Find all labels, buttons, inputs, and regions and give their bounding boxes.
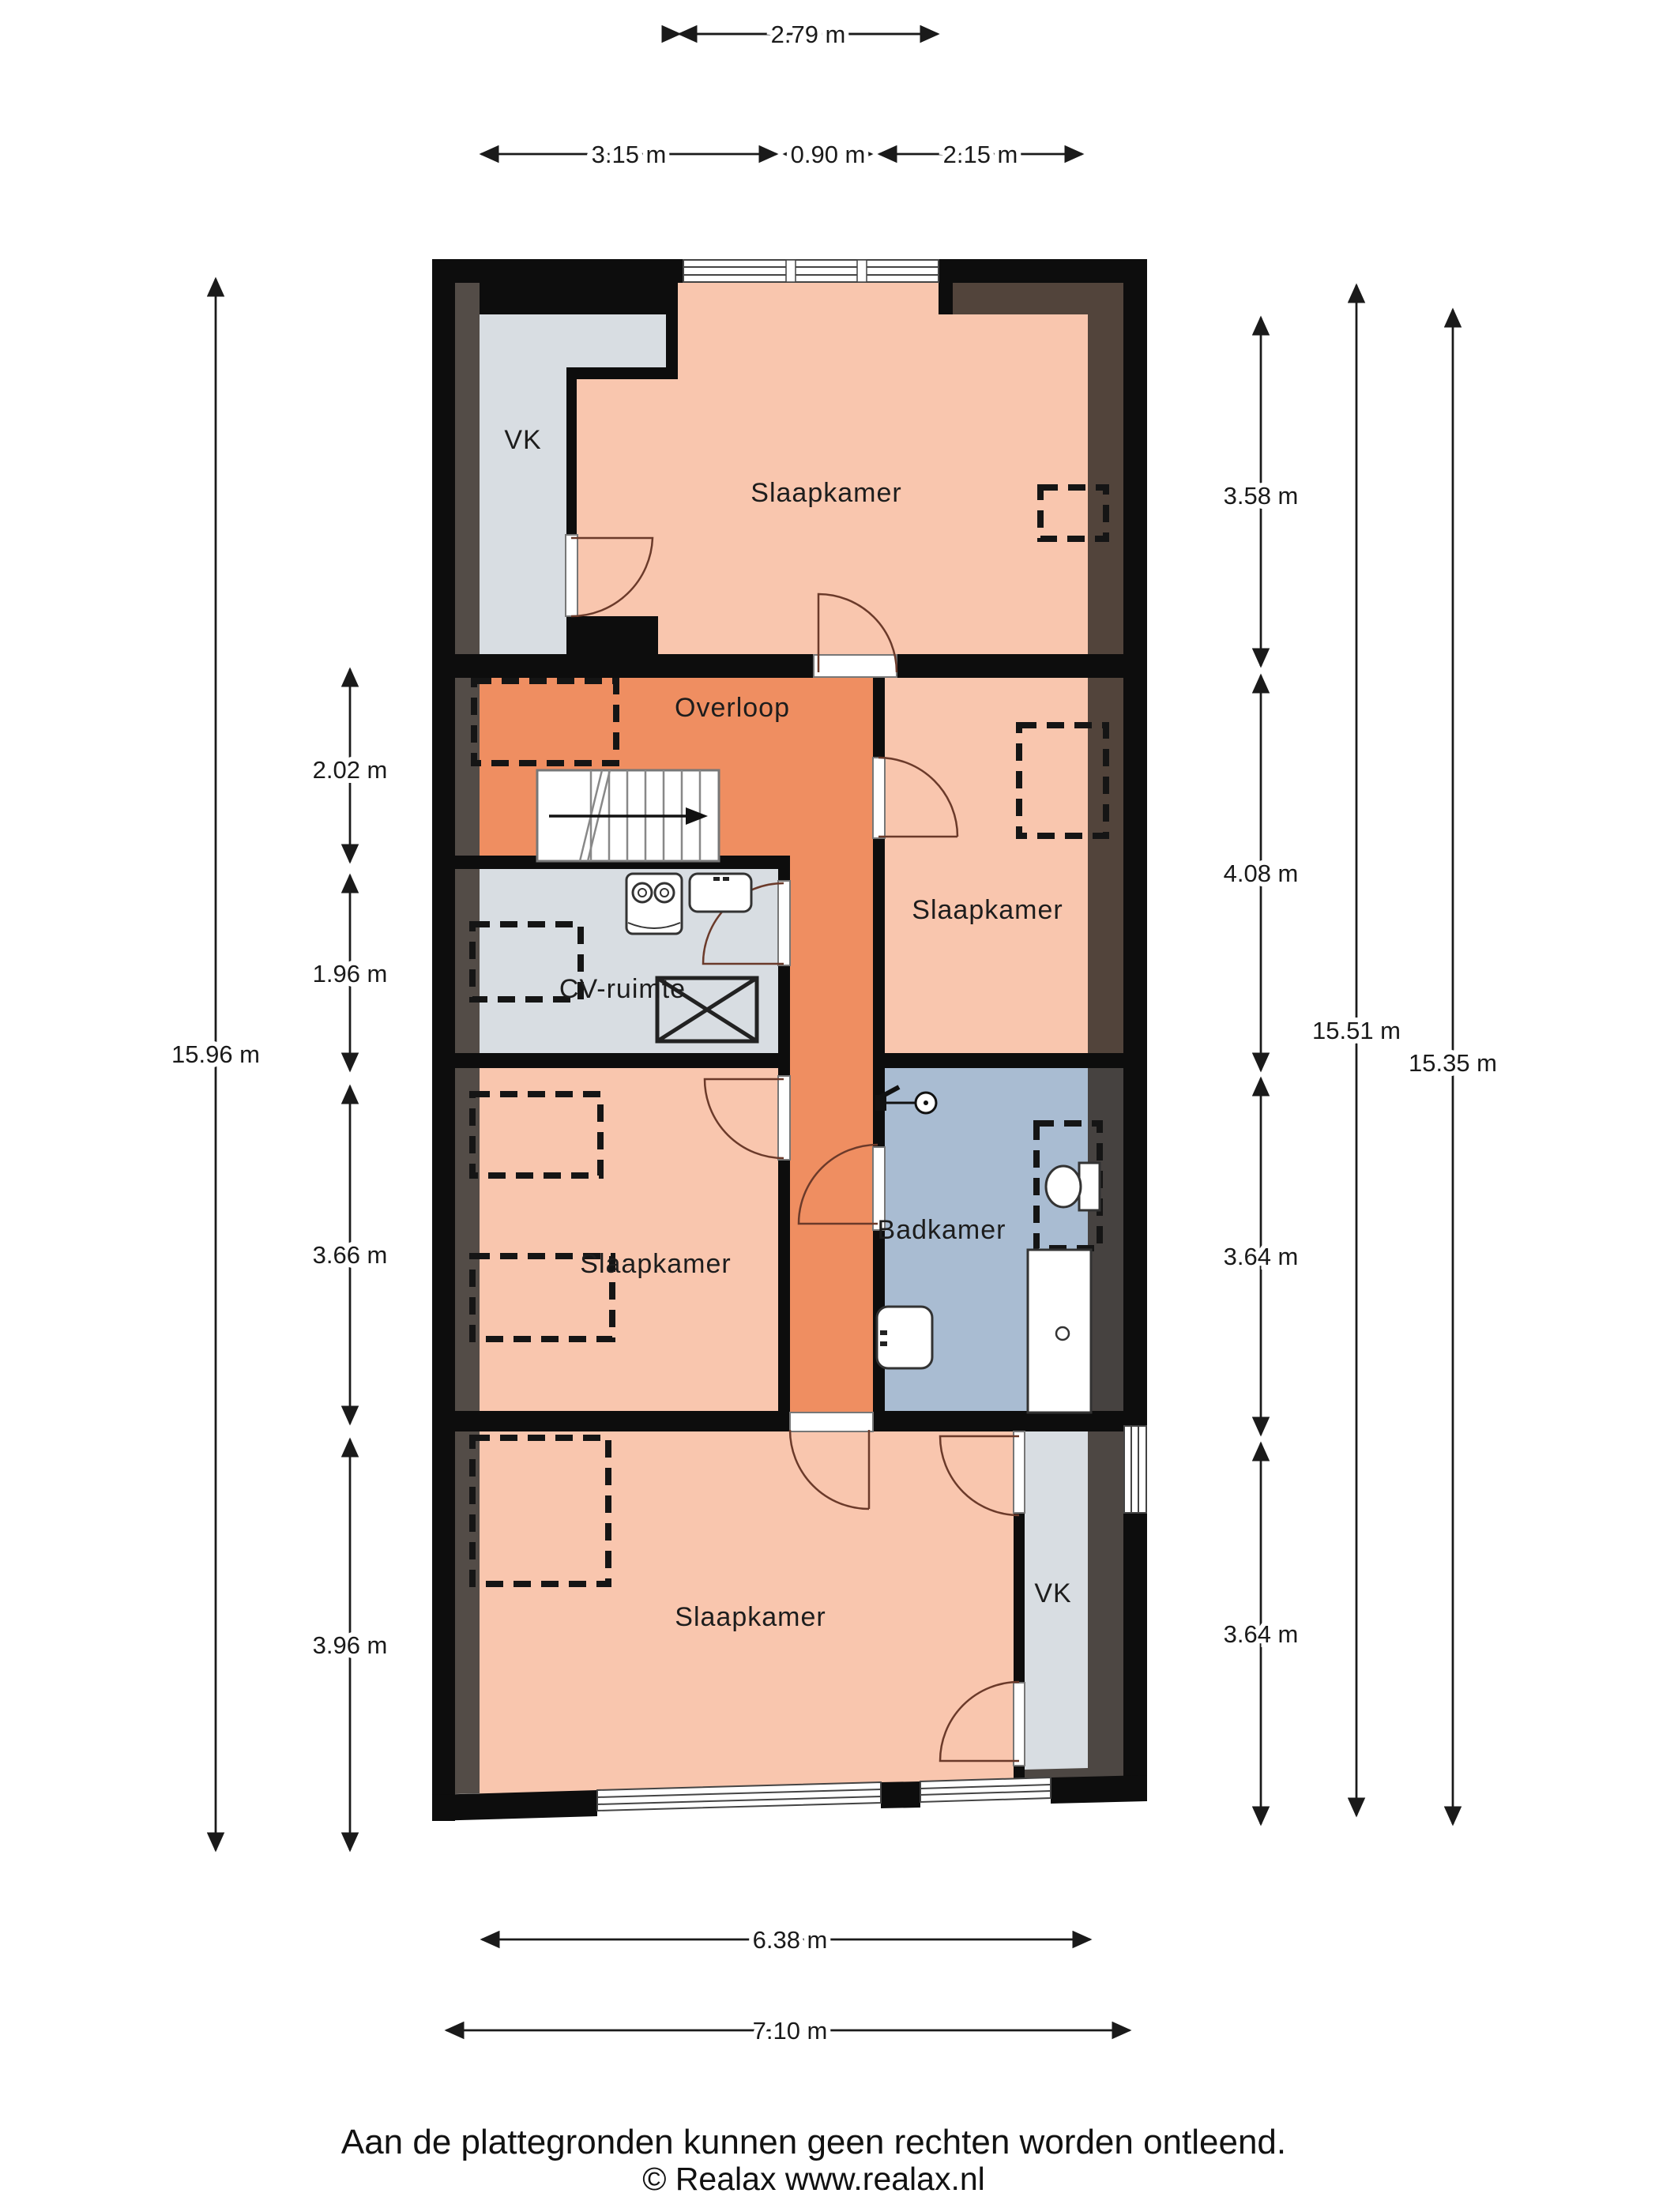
wall-vk-right-upper	[666, 283, 678, 379]
dim-right-0: 3.58 m	[1224, 482, 1299, 510]
wall-right-upper	[1123, 259, 1147, 1426]
toilet-icon	[1046, 1163, 1100, 1210]
room-slaapkamer-left	[480, 1066, 780, 1413]
dim-bottom-inner: 6.38 m	[753, 1926, 828, 1954]
footer-copyright: © Realax www.realax.nl	[642, 2161, 985, 2197]
wall-corridor-left-c	[778, 1160, 790, 1411]
wall-corridor-left-a	[778, 856, 790, 881]
dim-right-2: 3.64 m	[1224, 1243, 1299, 1270]
label-slaapkamer-top: Slaapkamer	[750, 478, 901, 508]
floorplan-page: VK Slaapkamer Overloop CV-ruimte Slaapka…	[0, 0, 1659, 2212]
label-slaapkamer-bottom: Slaapkamer	[675, 1602, 826, 1632]
wall-chimney-stub	[573, 616, 658, 654]
wall-cv-bottom	[455, 1053, 790, 1068]
roof-band-top-right	[953, 283, 1123, 314]
footer-disclaimer: Aan de plattegronden kunnen geen rechten…	[341, 2123, 1286, 2161]
cv-sink-icon	[690, 874, 751, 912]
dim-right-1: 4.08 m	[1224, 860, 1299, 887]
bathroom-sink-icon	[877, 1307, 932, 1368]
wall-left	[432, 259, 455, 1821]
wall-corridor-right-a	[873, 678, 885, 758]
label-overloop: Overloop	[675, 693, 790, 723]
wall-vk-top	[480, 283, 666, 314]
dim-left-0: 2.02 m	[313, 756, 388, 784]
dim-left-2: 3.66 m	[313, 1241, 388, 1269]
wall-top-left	[432, 259, 683, 283]
dim-row2-2: 2.15 m	[943, 141, 1018, 168]
wall-bottom-seg3	[1051, 1775, 1147, 1804]
dim-bottom-outer: 7.10 m	[753, 2017, 828, 2045]
wall-bottom-seg2	[881, 1781, 920, 1808]
dim-top: 2.79 m	[771, 21, 846, 48]
wall-vk-right-a	[566, 379, 577, 535]
staircase	[537, 770, 719, 861]
wall-top-step-stub	[939, 283, 953, 314]
label-vk-top: VK	[504, 425, 541, 455]
wall-vk-bottom-left-a	[1014, 1513, 1025, 1683]
label-cv-ruimte: CV-ruimte	[559, 974, 686, 1004]
dim-left-3: 3.96 m	[313, 1631, 388, 1659]
dim-right-total-inner: 15.51 m	[1312, 1017, 1401, 1044]
floorplan-svg: VK Slaapkamer Overloop CV-ruimte Slaapka…	[0, 0, 1659, 2212]
wall-vk-notch	[566, 367, 678, 379]
wall-bottomroom-top-right	[873, 1411, 1147, 1431]
dim-row2-0: 3.15 m	[592, 141, 667, 168]
dim-right-3: 3.64 m	[1224, 1620, 1299, 1648]
dim-right-total-outer: 15.35 m	[1409, 1049, 1497, 1077]
window-right	[1124, 1426, 1146, 1513]
dim-row2-1: 0.90 m	[791, 141, 866, 168]
wall-bottom-seg1	[432, 1790, 597, 1821]
wall-bottomroom-top-left	[455, 1411, 790, 1431]
footer: Aan de plattegronden kunnen geen rechten…	[341, 2123, 1286, 2197]
wall-right-lower	[1123, 1513, 1147, 1787]
roof-band-left	[455, 283, 480, 1794]
label-slaapkamer-left: Slaapkamer	[580, 1249, 731, 1279]
wall-overloop-top-right	[897, 654, 1123, 678]
dim-left-1: 1.96 m	[313, 960, 388, 987]
wall-badkamer-top	[873, 1053, 1123, 1068]
wall-overloop-top-left	[455, 654, 814, 678]
dim-left-total: 15.96 m	[171, 1040, 260, 1068]
window-top	[683, 260, 939, 282]
label-slaapkamer-right: Slaapkamer	[912, 895, 1063, 925]
label-vk-bottom: VK	[1034, 1578, 1071, 1608]
window-bottom-b	[920, 1777, 1051, 1802]
room-slaapkamer-right	[883, 676, 1123, 1055]
bath-icon	[1028, 1250, 1091, 1413]
wall-top-right	[939, 259, 1147, 283]
label-badkamer: Badkamer	[878, 1215, 1006, 1245]
